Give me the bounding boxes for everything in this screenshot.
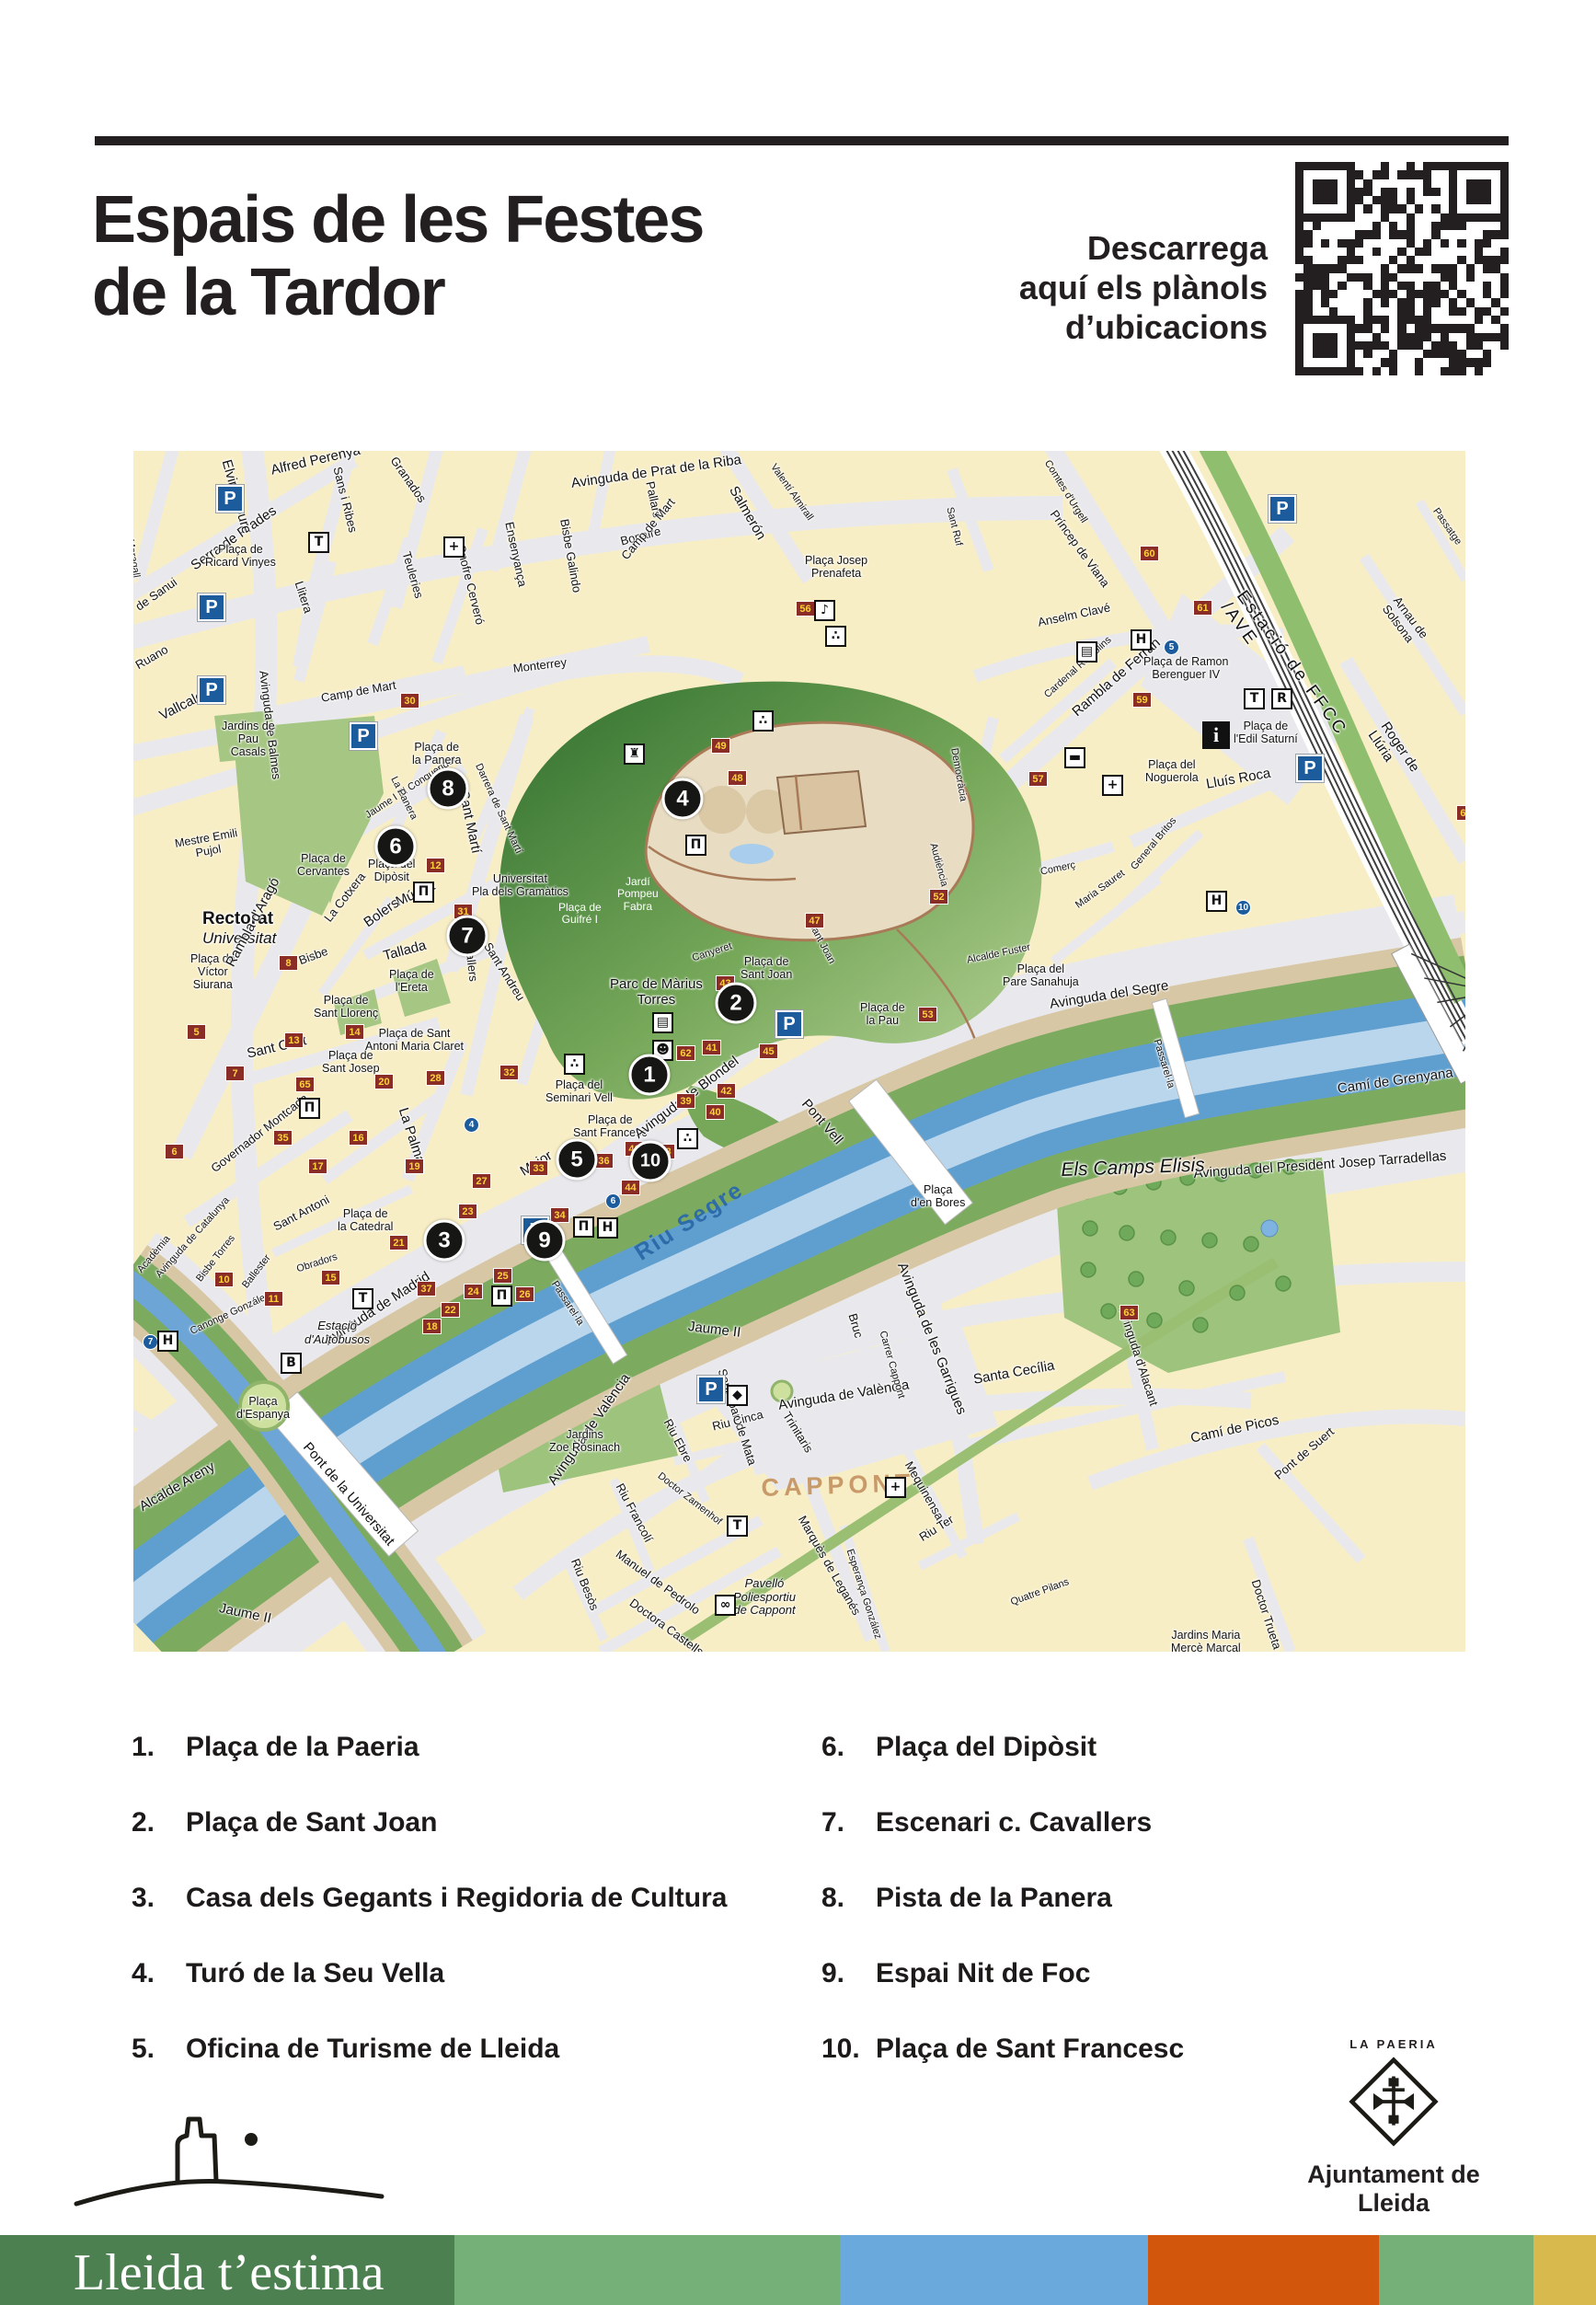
qr-module xyxy=(1313,350,1321,358)
qr-module xyxy=(1303,230,1312,238)
qr-module xyxy=(1295,264,1303,272)
qr-module xyxy=(1466,341,1475,350)
qr-module xyxy=(1423,162,1431,170)
qr-module xyxy=(1303,170,1312,179)
qr-module xyxy=(1423,358,1431,366)
qr-module xyxy=(1431,282,1440,290)
qr-module xyxy=(1441,188,1449,196)
qr-module xyxy=(1355,264,1363,272)
qr-module xyxy=(1363,170,1372,179)
qr-module xyxy=(1338,222,1346,230)
legend-item-3: 3.Casa dels Gegants i Regidoria de Cultu… xyxy=(132,1883,728,1958)
qr-module xyxy=(1338,248,1346,256)
qr-module xyxy=(1381,179,1389,188)
legend-item-label: Escenari c. Cavallers xyxy=(876,1807,1152,1838)
qr-module xyxy=(1466,239,1475,248)
qr-module xyxy=(1423,230,1431,238)
qr-module xyxy=(1500,179,1509,188)
qr-module xyxy=(1295,298,1303,306)
qr-module xyxy=(1372,239,1381,248)
qr-module xyxy=(1355,230,1363,238)
qr-module xyxy=(1303,248,1312,256)
qr-module xyxy=(1475,273,1483,282)
qr-module xyxy=(1363,333,1372,341)
qr-module xyxy=(1441,290,1449,298)
map-marker-10: 10 xyxy=(630,1141,672,1182)
legend-item-number: 1. xyxy=(132,1732,186,1763)
legend-item-label: Espai Nit de Foc xyxy=(876,1958,1090,1989)
qr-module xyxy=(1303,333,1312,341)
qr-module xyxy=(1415,341,1423,350)
qr-module xyxy=(1449,248,1457,256)
qr-module xyxy=(1389,358,1397,366)
qr-module xyxy=(1347,333,1355,341)
qr-module xyxy=(1500,239,1509,248)
qr-module xyxy=(1381,188,1389,196)
qr-module xyxy=(1483,324,1491,332)
qr-module xyxy=(1407,248,1415,256)
qr-module xyxy=(1457,350,1465,358)
legend-item-label: Turó de la Seu Vella xyxy=(186,1958,444,1989)
qr-module xyxy=(1329,230,1338,238)
qr-module xyxy=(1329,179,1338,188)
qr-module xyxy=(1397,162,1406,170)
qr-module xyxy=(1338,298,1346,306)
qr-module xyxy=(1407,239,1415,248)
legend-item-5: 5.Oficina de Turisme de Lleida xyxy=(132,2034,728,2109)
qr-caption-line: aquí els plànols xyxy=(957,268,1268,307)
qr-module xyxy=(1466,213,1475,222)
qr-module xyxy=(1389,290,1397,298)
footer-bar-segment-3 xyxy=(840,2235,1148,2305)
qr-module xyxy=(1303,196,1312,204)
qr-module xyxy=(1372,188,1381,196)
qr-module xyxy=(1329,239,1338,248)
qr-module xyxy=(1363,213,1372,222)
qr-module xyxy=(1449,282,1457,290)
qr-module xyxy=(1397,239,1406,248)
qr-module xyxy=(1449,230,1457,238)
qr-module xyxy=(1338,204,1346,213)
qr-module xyxy=(1347,188,1355,196)
qr-module xyxy=(1423,273,1431,282)
qr-module xyxy=(1329,256,1338,264)
qr-module xyxy=(1441,196,1449,204)
qr-module xyxy=(1457,367,1465,375)
qr-module xyxy=(1491,196,1499,204)
qr-module xyxy=(1313,316,1321,324)
qr-module xyxy=(1423,324,1431,332)
qr-module xyxy=(1500,316,1509,324)
qr-module xyxy=(1381,358,1389,366)
qr-module xyxy=(1466,179,1475,188)
qr-module xyxy=(1381,316,1389,324)
qr-module xyxy=(1475,248,1483,256)
qr-module xyxy=(1355,222,1363,230)
qr-module xyxy=(1449,273,1457,282)
qr-module xyxy=(1303,188,1312,196)
qr-module xyxy=(1449,256,1457,264)
qr-module xyxy=(1347,248,1355,256)
qr-module xyxy=(1457,358,1465,366)
qr-module xyxy=(1321,213,1329,222)
paeria-emblem-icon xyxy=(1343,2051,1444,2152)
qr-module xyxy=(1475,358,1483,366)
qr-module xyxy=(1389,264,1397,272)
qr-module xyxy=(1457,341,1465,350)
legend-item-label: Plaça de Sant Francesc xyxy=(876,2034,1184,2065)
qr-module xyxy=(1449,213,1457,222)
qr-module xyxy=(1321,350,1329,358)
qr-module xyxy=(1466,316,1475,324)
qr-module xyxy=(1431,196,1440,204)
qr-module xyxy=(1475,324,1483,332)
qr-module xyxy=(1491,350,1499,358)
qr-module xyxy=(1431,290,1440,298)
qr-module xyxy=(1381,307,1389,316)
qr-module xyxy=(1397,290,1406,298)
qr-module xyxy=(1423,170,1431,179)
qr-module xyxy=(1381,350,1389,358)
qr-module xyxy=(1303,239,1312,248)
qr-module xyxy=(1415,188,1423,196)
qr-module xyxy=(1397,248,1406,256)
qr-module xyxy=(1303,316,1312,324)
legend-item-number: 6. xyxy=(821,1732,876,1763)
qr-module xyxy=(1457,282,1465,290)
qr-module xyxy=(1397,324,1406,332)
qr-module xyxy=(1407,298,1415,306)
qr-module xyxy=(1415,307,1423,316)
qr-module xyxy=(1431,222,1440,230)
qr-module xyxy=(1475,367,1483,375)
qr-module xyxy=(1303,358,1312,366)
qr-module xyxy=(1415,316,1423,324)
qr-module xyxy=(1389,248,1397,256)
qr-module xyxy=(1449,298,1457,306)
qr-module xyxy=(1449,290,1457,298)
map-marker-8: 8 xyxy=(428,768,469,810)
qr-module xyxy=(1397,367,1406,375)
qr-module xyxy=(1313,307,1321,316)
qr-module xyxy=(1415,230,1423,238)
qr-module xyxy=(1475,204,1483,213)
qr-module xyxy=(1347,196,1355,204)
qr-module xyxy=(1407,316,1415,324)
qr-module xyxy=(1423,341,1431,350)
qr-module xyxy=(1457,273,1465,282)
qr-module xyxy=(1466,333,1475,341)
qr-module xyxy=(1355,162,1363,170)
legend-item-number: 4. xyxy=(132,1958,186,1989)
qr-module xyxy=(1372,162,1381,170)
qr-module xyxy=(1407,230,1415,238)
qr-module xyxy=(1415,196,1423,204)
qr-module xyxy=(1397,256,1406,264)
qr-module xyxy=(1500,307,1509,316)
qr-module xyxy=(1363,196,1372,204)
map-marker-7: 7 xyxy=(447,916,488,957)
legend-item-number: 5. xyxy=(132,2034,186,2065)
qr-module xyxy=(1449,307,1457,316)
qr-module xyxy=(1457,256,1465,264)
qr-module xyxy=(1397,307,1406,316)
qr-module xyxy=(1338,316,1346,324)
qr-module xyxy=(1491,213,1499,222)
qr-module xyxy=(1449,239,1457,248)
qr-module xyxy=(1372,204,1381,213)
ajuntament-label: Ajuntament de Lleida xyxy=(1269,2161,1518,2218)
qr-module xyxy=(1407,307,1415,316)
legend-item-8: 8.Pista de la Panera xyxy=(821,1883,1184,1958)
qr-module xyxy=(1363,162,1372,170)
qr-module xyxy=(1397,213,1406,222)
qr-module xyxy=(1483,341,1491,350)
qr-module xyxy=(1313,290,1321,298)
qr-module xyxy=(1389,239,1397,248)
legend-item-number: 9. xyxy=(821,1958,876,1989)
qr-module xyxy=(1303,222,1312,230)
qr-module xyxy=(1500,248,1509,256)
qr-module xyxy=(1431,316,1440,324)
qr-module xyxy=(1415,179,1423,188)
qr-module xyxy=(1295,273,1303,282)
qr-module xyxy=(1381,213,1389,222)
qr-module xyxy=(1372,230,1381,238)
qr-module xyxy=(1363,204,1372,213)
qr-module xyxy=(1329,341,1338,350)
qr-module xyxy=(1500,341,1509,350)
qr-module xyxy=(1431,273,1440,282)
qr-module xyxy=(1389,213,1397,222)
qr-module xyxy=(1321,333,1329,341)
qr-module xyxy=(1295,170,1303,179)
title-line-2: de la Tardor xyxy=(92,257,703,329)
qr-module xyxy=(1431,256,1440,264)
qr-module xyxy=(1295,248,1303,256)
qr-module xyxy=(1491,290,1499,298)
qr-module xyxy=(1397,188,1406,196)
qr-module xyxy=(1475,350,1483,358)
qr-module xyxy=(1303,273,1312,282)
paeria-logo-block: LA PAERIA Ajuntament de Lleida xyxy=(1269,2037,1518,2218)
qr-module xyxy=(1483,213,1491,222)
qr-module xyxy=(1431,213,1440,222)
qr-module xyxy=(1483,196,1491,204)
qr-module xyxy=(1457,290,1465,298)
qr-module xyxy=(1500,298,1509,306)
qr-module xyxy=(1295,316,1303,324)
qr-module xyxy=(1466,273,1475,282)
qr-module xyxy=(1313,179,1321,188)
qr-module xyxy=(1329,367,1338,375)
qr-module xyxy=(1363,273,1372,282)
qr-module xyxy=(1313,358,1321,366)
qr-module xyxy=(1303,162,1312,170)
qr-module xyxy=(1381,248,1389,256)
qr-module xyxy=(1415,222,1423,230)
qr-module xyxy=(1355,316,1363,324)
qr-module xyxy=(1475,290,1483,298)
qr-module xyxy=(1338,350,1346,358)
qr-module xyxy=(1363,179,1372,188)
qr-module xyxy=(1321,248,1329,256)
qr-caption-line: d’ubicacions xyxy=(957,307,1268,347)
qr-module xyxy=(1338,256,1346,264)
qr-module xyxy=(1449,358,1457,366)
qr-module xyxy=(1321,307,1329,316)
qr-module xyxy=(1313,282,1321,290)
qr-module xyxy=(1321,222,1329,230)
legend-item-4: 4.Turó de la Seu Vella xyxy=(132,1958,728,2034)
qr-module xyxy=(1431,358,1440,366)
qr-module xyxy=(1363,264,1372,272)
qr-module xyxy=(1475,316,1483,324)
qr-module xyxy=(1466,290,1475,298)
qr-module xyxy=(1415,239,1423,248)
qr-module xyxy=(1321,358,1329,366)
qr-module xyxy=(1295,222,1303,230)
qr-module xyxy=(1397,204,1406,213)
qr-module xyxy=(1441,248,1449,256)
qr-caption-line: Descarrega xyxy=(957,228,1268,268)
qr-code xyxy=(1295,162,1509,375)
qr-module xyxy=(1500,290,1509,298)
qr-module xyxy=(1321,256,1329,264)
qr-module xyxy=(1355,307,1363,316)
qr-module xyxy=(1303,282,1312,290)
qr-module xyxy=(1457,213,1465,222)
qr-module xyxy=(1355,298,1363,306)
qr-module xyxy=(1355,256,1363,264)
footer-bar-segment-4 xyxy=(1148,2235,1379,2305)
legend-item-label: Casa dels Gegants i Regidoria de Cultura xyxy=(186,1883,728,1914)
qr-module xyxy=(1295,333,1303,341)
qr-module xyxy=(1457,188,1465,196)
qr-module xyxy=(1329,290,1338,298)
qr-module xyxy=(1423,282,1431,290)
qr-module xyxy=(1372,290,1381,298)
qr-module xyxy=(1483,256,1491,264)
qr-module xyxy=(1407,170,1415,179)
qr-module xyxy=(1449,188,1457,196)
qr-module xyxy=(1295,162,1303,170)
qr-module xyxy=(1389,333,1397,341)
qr-module xyxy=(1449,170,1457,179)
qr-module xyxy=(1466,282,1475,290)
qr-module xyxy=(1483,264,1491,272)
qr-module xyxy=(1407,358,1415,366)
qr-module xyxy=(1321,239,1329,248)
qr-module xyxy=(1363,188,1372,196)
qr-module xyxy=(1347,341,1355,350)
qr-module xyxy=(1457,307,1465,316)
qr-module xyxy=(1397,264,1406,272)
qr-module xyxy=(1407,273,1415,282)
qr-module xyxy=(1491,170,1499,179)
qr-module xyxy=(1329,196,1338,204)
qr-module xyxy=(1407,162,1415,170)
qr-module xyxy=(1475,307,1483,316)
qr-module xyxy=(1397,358,1406,366)
qr-module xyxy=(1441,273,1449,282)
qr-module xyxy=(1449,316,1457,324)
qr-module xyxy=(1491,341,1499,350)
qr-module xyxy=(1441,213,1449,222)
qr-module xyxy=(1441,239,1449,248)
qr-module xyxy=(1313,256,1321,264)
qr-module xyxy=(1313,230,1321,238)
qr-module xyxy=(1466,222,1475,230)
qr-module xyxy=(1491,188,1499,196)
qr-module xyxy=(1321,282,1329,290)
qr-module xyxy=(1338,282,1346,290)
qr-module xyxy=(1500,188,1509,196)
qr-module xyxy=(1491,333,1499,341)
qr-module xyxy=(1381,341,1389,350)
qr-module xyxy=(1466,230,1475,238)
qr-module xyxy=(1449,204,1457,213)
footer-bar-segment-2 xyxy=(454,2235,840,2305)
qr-module xyxy=(1466,350,1475,358)
qr-module xyxy=(1381,222,1389,230)
qr-module xyxy=(1313,204,1321,213)
qr-module xyxy=(1347,273,1355,282)
qr-module xyxy=(1423,298,1431,306)
qr-module xyxy=(1483,204,1491,213)
qr-module xyxy=(1338,213,1346,222)
qr-module xyxy=(1372,222,1381,230)
qr-module xyxy=(1466,162,1475,170)
qr-module xyxy=(1457,324,1465,332)
qr-module xyxy=(1475,188,1483,196)
qr-module xyxy=(1338,264,1346,272)
qr-module xyxy=(1338,341,1346,350)
qr-module xyxy=(1303,264,1312,272)
qr-module xyxy=(1407,222,1415,230)
qr-module xyxy=(1483,307,1491,316)
qr-module xyxy=(1431,248,1440,256)
qr-module xyxy=(1347,179,1355,188)
qr-module xyxy=(1483,239,1491,248)
qr-module xyxy=(1423,222,1431,230)
legend-item-number: 3. xyxy=(132,1883,186,1914)
qr-module xyxy=(1338,367,1346,375)
qr-module xyxy=(1363,222,1372,230)
footer-bar-segment-6 xyxy=(1533,2235,1596,2305)
qr-module xyxy=(1431,367,1440,375)
qr-module xyxy=(1389,341,1397,350)
qr-module xyxy=(1466,256,1475,264)
qr-module xyxy=(1329,188,1338,196)
qr-module xyxy=(1381,333,1389,341)
qr-module xyxy=(1491,248,1499,256)
qr-module xyxy=(1313,213,1321,222)
qr-module xyxy=(1338,196,1346,204)
legend-item-number: 8. xyxy=(821,1883,876,1914)
qr-module xyxy=(1441,324,1449,332)
qr-module xyxy=(1415,213,1423,222)
qr-module xyxy=(1313,367,1321,375)
qr-module xyxy=(1415,324,1423,332)
qr-module xyxy=(1407,282,1415,290)
qr-module xyxy=(1500,204,1509,213)
title-line-1: Espais de les Festes xyxy=(92,184,703,257)
qr-module xyxy=(1441,162,1449,170)
city-map: Serra de PradesAlfred PerenyaElvira Rour… xyxy=(133,451,1465,1652)
qr-module xyxy=(1466,188,1475,196)
qr-module xyxy=(1483,290,1491,298)
